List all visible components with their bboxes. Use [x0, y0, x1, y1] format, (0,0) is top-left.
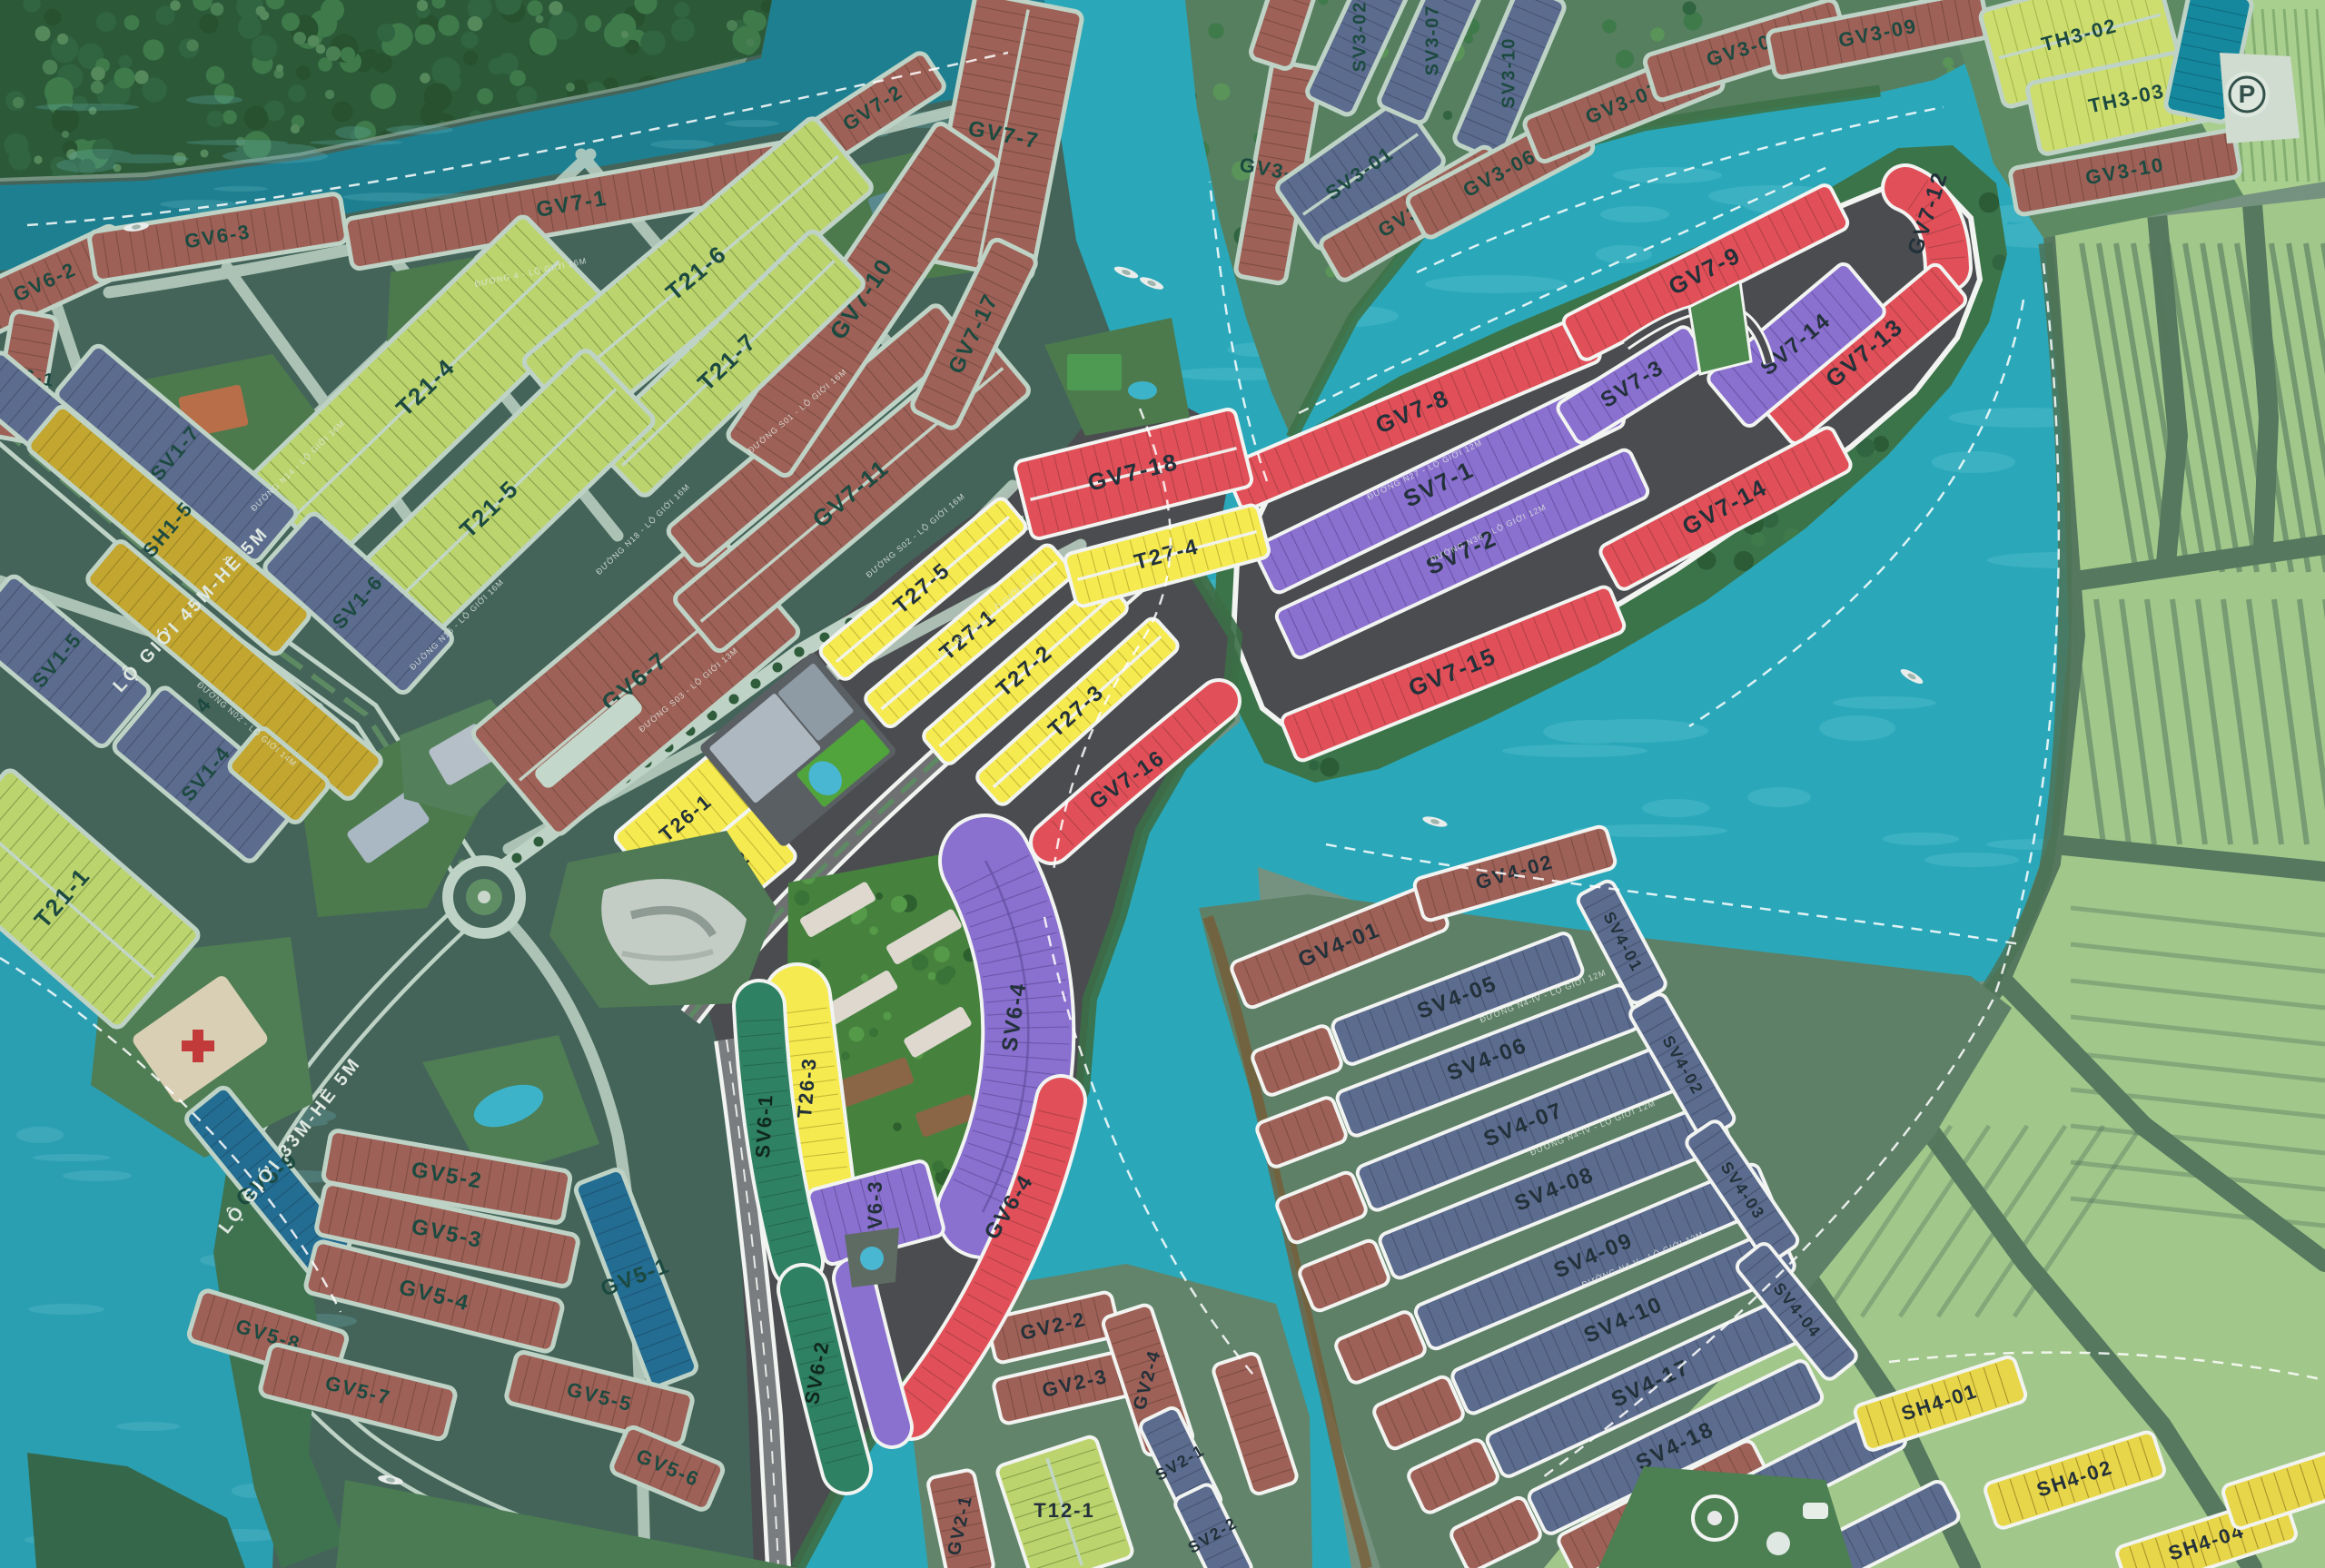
svg-text:SV3-07: SV3-07	[1422, 5, 1442, 76]
svg-text:SV3-10: SV3-10	[1499, 37, 1519, 109]
svg-text:SV6-1: SV6-1	[751, 1093, 777, 1159]
svg-text:SV3-02: SV3-02	[1350, 1, 1370, 73]
svg-text:T12-1: T12-1	[1034, 1499, 1094, 1522]
svg-text:P: P	[2239, 80, 2256, 108]
